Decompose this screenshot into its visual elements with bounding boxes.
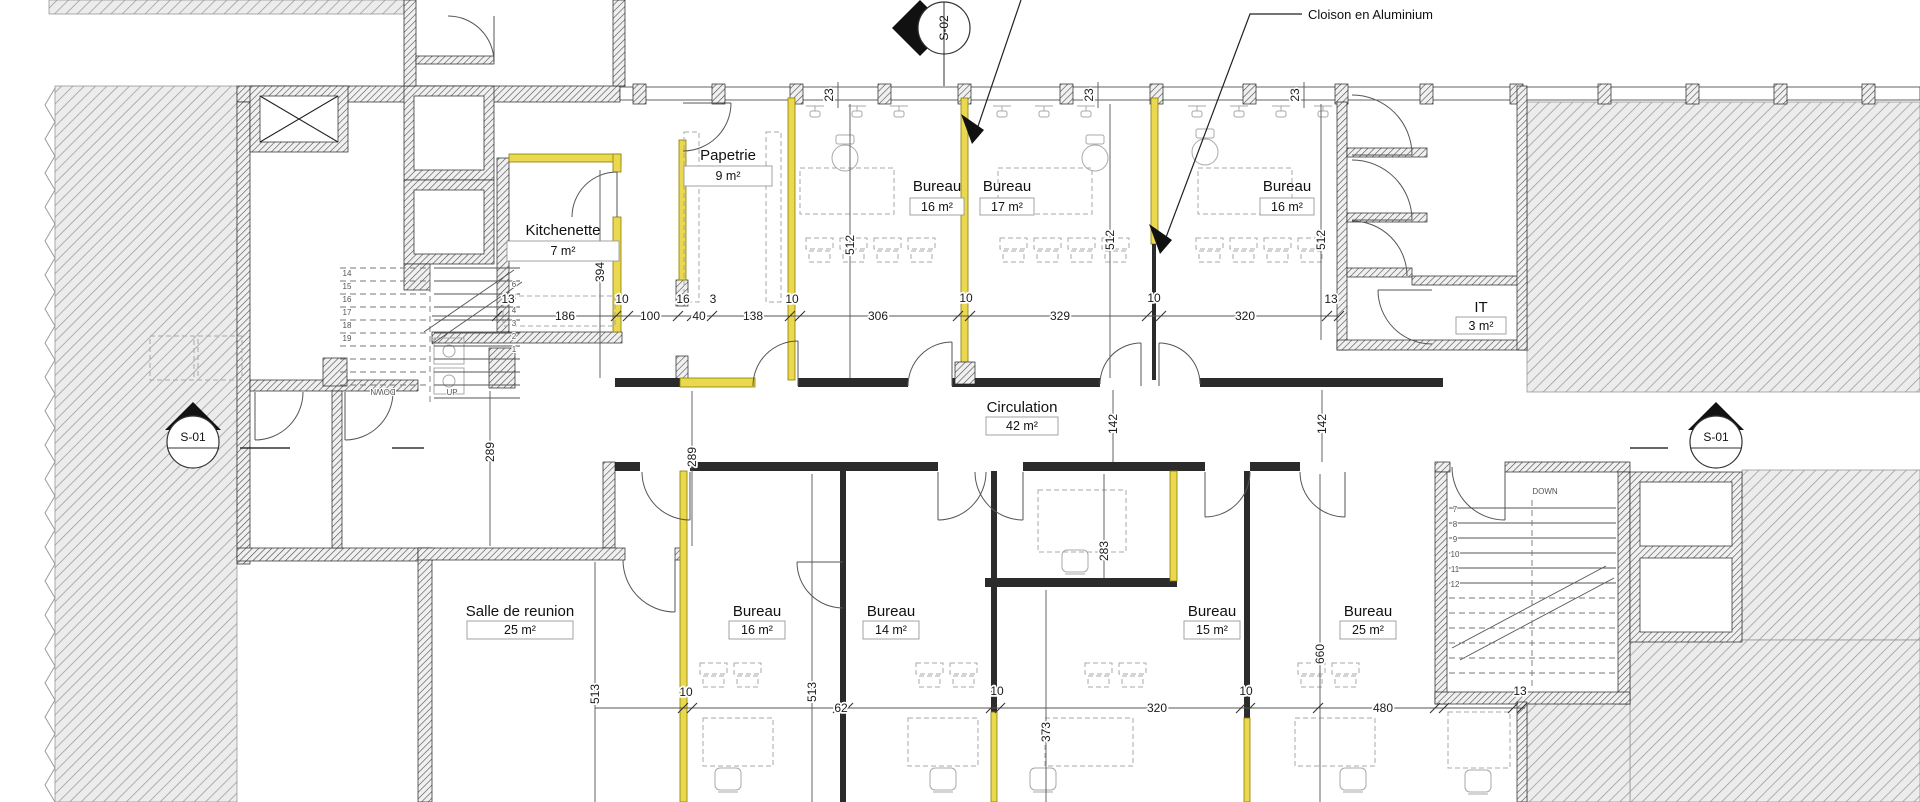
dim-label: 512 (843, 235, 857, 255)
room-label-bureau-top-mid: Bureau 17 m² (980, 178, 1034, 215)
dim-label: 512 (1103, 230, 1117, 250)
dim-label: 660 (1313, 644, 1327, 664)
svg-text:25 m²: 25 m² (504, 623, 536, 637)
svg-text:7 m²: 7 m² (551, 244, 576, 258)
dim-label: 16 (676, 292, 690, 306)
section-marker-label: S-02 (937, 15, 951, 41)
stair-down-label: DOWN (1532, 487, 1558, 496)
svg-text:Bureau: Bureau (983, 178, 1031, 195)
stair-step-number: 17 (343, 308, 352, 317)
stair-step-number: 19 (343, 334, 352, 343)
room-label-bureau-bottom-3: Bureau 15 m² (1184, 603, 1240, 639)
aluminium-partitions (509, 98, 1250, 802)
room-label-kitchenette: Kitchenette 7 m² (507, 222, 619, 261)
svg-text:9 m²: 9 m² (716, 169, 741, 183)
svg-text:Bureau: Bureau (867, 603, 915, 620)
dim-label: 13 (501, 292, 515, 306)
dim-label: 142 (1315, 414, 1329, 434)
dim-label: 10 (679, 685, 693, 699)
svg-text:17 m²: 17 m² (991, 200, 1023, 214)
section-marker-label: S-01 (1703, 430, 1729, 444)
svg-text:16 m²: 16 m² (741, 623, 773, 637)
stair-step-number: 15 (343, 282, 352, 291)
room-label-it: IT 3 m² (1456, 299, 1506, 334)
stair-up-label: UP (446, 388, 457, 397)
stair-step-number: 1 (512, 345, 517, 354)
stair-step-number: 12 (1451, 580, 1460, 589)
stair-step-number: 14 (343, 269, 352, 278)
stair-down-label: DOWN (370, 387, 396, 396)
room-label-bureau-bottom-1: Bureau 16 m² (729, 603, 785, 639)
svg-text:3 m²: 3 m² (1469, 319, 1494, 333)
dim-label: 289 (685, 447, 699, 467)
dim-label: 289 (483, 442, 497, 462)
dim-label: 23 (1082, 88, 1096, 102)
dim-label: 13 (1513, 684, 1527, 698)
svg-text:Bureau: Bureau (1188, 603, 1236, 620)
dim-label: 23 (822, 88, 836, 102)
stair-step-number: 16 (343, 295, 352, 304)
stair-step-number: 3 (512, 319, 517, 328)
dim-label: 512 (1314, 230, 1328, 250)
dim-label: 10 (990, 684, 1004, 698)
dim-label: 3 (710, 292, 717, 306)
stair-step-number: 2 (512, 332, 517, 341)
stair-step-number: 6 (512, 280, 517, 289)
dim-label: 320 (1235, 309, 1255, 323)
room-label-papetrie: Papetrie 9 m² (684, 147, 772, 186)
dim-label: 13 (1324, 292, 1338, 306)
svg-text:Bureau: Bureau (733, 603, 781, 620)
stair-step-number: 18 (343, 321, 352, 330)
section-marker-s02: S-02 (892, 0, 970, 86)
room-label-salle-reunion: Salle de reunion 25 m² (466, 603, 574, 639)
room-label-bureau-top-left: Bureau 16 m² (910, 178, 964, 215)
room-label-bureau-top-right: Bureau 16 m² (1260, 178, 1314, 215)
section-marker-label: S-01 (180, 430, 206, 444)
section-marker-s01-right: S-01 (1630, 402, 1744, 468)
dim-label: 306 (868, 309, 888, 323)
stair-step-number: 4 (512, 306, 517, 315)
svg-text:16 m²: 16 m² (1271, 200, 1303, 214)
dim-label: 513 (588, 684, 602, 704)
dim-label: 40 (692, 309, 706, 323)
dim-label: 62 (834, 701, 848, 715)
room-label-bureau-bottom-2: Bureau 14 m² (863, 603, 919, 639)
dim-label: 138 (743, 309, 763, 323)
dim-label: 513 (805, 682, 819, 702)
svg-text:Bureau: Bureau (1344, 603, 1392, 620)
dim-label: 100 (640, 309, 660, 323)
cloison-annotation-label: Cloison en Aluminium (1308, 7, 1433, 22)
svg-text:Bureau: Bureau (1263, 178, 1311, 195)
room-label-bureau-bottom-4: Bureau 25 m² (1340, 603, 1396, 639)
room-label-circulation: Circulation 42 m² (986, 399, 1058, 435)
svg-text:IT: IT (1474, 299, 1487, 316)
dim-label: 329 (1050, 309, 1070, 323)
svg-text:Papetrie: Papetrie (700, 147, 756, 164)
dimensions: 13 186 10 100 16 40 3 138 10 306 10 329 … (432, 82, 1527, 802)
stair-step-number: 9 (1453, 535, 1458, 544)
floor-plan-canvas: 14 15 16 17 18 19 6 5 4 3 2 1 DOWN UP 7 … (0, 0, 1920, 802)
dim-label: 23 (1288, 88, 1302, 102)
dim-label: 10 (1239, 684, 1253, 698)
dim-label: 186 (555, 309, 575, 323)
svg-text:Bureau: Bureau (913, 178, 961, 195)
floor-plan-page: 14 15 16 17 18 19 6 5 4 3 2 1 DOWN UP 7 … (0, 0, 1920, 802)
dim-label: 373 (1039, 722, 1053, 742)
dim-label: 480 (1373, 701, 1393, 715)
dim-label: 394 (593, 262, 607, 282)
stair-step-number: 8 (1453, 520, 1458, 529)
stair-step-number: 10 (1451, 550, 1460, 559)
dim-label: 10 (959, 291, 973, 305)
stair-step-number: 7 (1453, 505, 1458, 514)
svg-text:16 m²: 16 m² (921, 200, 953, 214)
dim-label: 10 (615, 292, 629, 306)
svg-text:Kitchenette: Kitchenette (525, 222, 600, 239)
svg-text:Salle de reunion: Salle de reunion (466, 603, 574, 620)
svg-text:Circulation: Circulation (987, 399, 1058, 416)
dim-label: 142 (1106, 414, 1120, 434)
dim-label: 320 (1147, 701, 1167, 715)
dim-label: 283 (1097, 541, 1111, 561)
dim-label: 10 (785, 292, 799, 306)
stairs-right: 7 8 9 10 11 12 DOWN (1449, 487, 1616, 688)
svg-text:14 m²: 14 m² (875, 623, 907, 637)
dim-label: 10 (1147, 291, 1161, 305)
svg-text:25 m²: 25 m² (1352, 623, 1384, 637)
stair-step-number: 11 (1451, 565, 1460, 574)
svg-text:15 m²: 15 m² (1196, 623, 1228, 637)
svg-text:42 m²: 42 m² (1006, 419, 1038, 433)
